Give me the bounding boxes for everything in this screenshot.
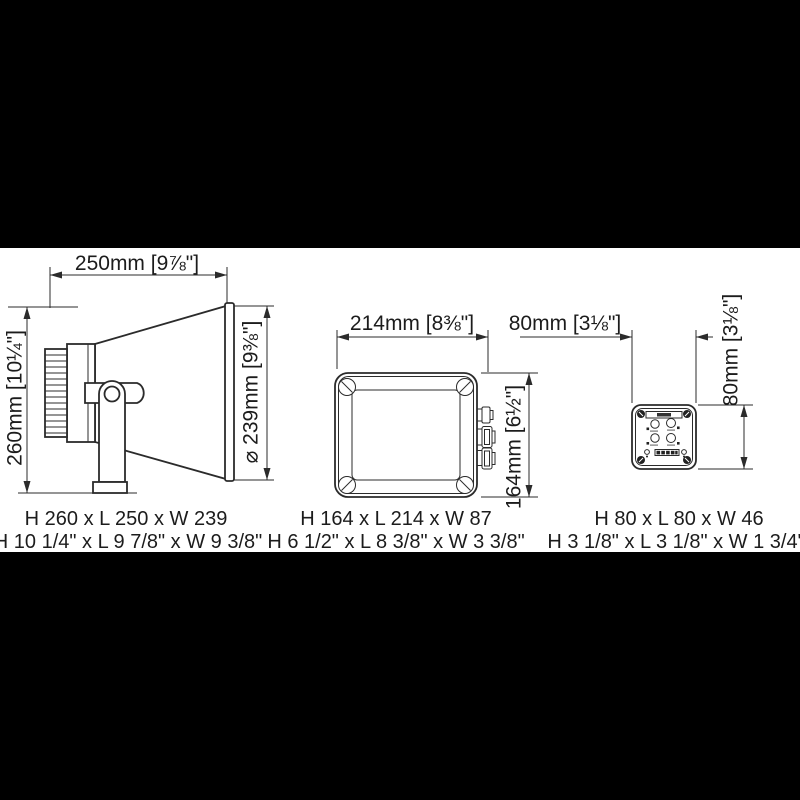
horn-caption-imperial: H 10 1/4" x L 9 7/8" x W 9 3/8" xyxy=(0,531,262,553)
control-panel-drawing xyxy=(632,405,696,469)
box-length-dim-label: 214mm [8⅜"] xyxy=(350,312,474,335)
panel-button-2[interactable] xyxy=(667,419,676,428)
bracket-foot xyxy=(93,482,127,493)
panel-caption-imperial: H 3 1/8" x L 3 1/8" x W 1 3/4" xyxy=(547,531,800,553)
box-height-dim-label: 164mm [6½"] xyxy=(502,385,525,509)
ribbed-back xyxy=(45,349,67,437)
amplifier-box-drawing xyxy=(335,373,495,497)
box-outer xyxy=(335,373,477,497)
horn-diameter-dim-label: ⌀ 239mm [9⅜"] xyxy=(239,321,262,464)
horn-caption-metric: H 260 x L 250 x W 239 xyxy=(25,508,228,530)
horn-length-dim-label: 250mm [9⅞"] xyxy=(75,252,199,275)
pivot-screw xyxy=(105,387,120,402)
panel-button-4[interactable] xyxy=(667,434,676,443)
box-caption-imperial: H 6 1/2" x L 8 3/8" x W 3 3/8" xyxy=(267,531,524,553)
panel-top-label-text xyxy=(657,413,671,417)
panel-length-dim-label: 80mm [3⅛"] xyxy=(509,312,622,335)
horn-mouth-rim xyxy=(225,303,234,481)
horn-height-dim-label: 260mm [10¼"] xyxy=(3,330,26,466)
captions: H 260 x L 250 x W 239 H 10 1/4" x L 9 7/… xyxy=(0,508,800,553)
box-caption-metric: H 164 x L 214 x W 87 xyxy=(300,508,492,530)
dimension-diagram: 250mm [9⅞"] 260mm [10¼"] ⌀ 239mm [9⅜"] xyxy=(0,0,800,800)
panel-caption-metric: H 80 x L 80 x W 46 xyxy=(594,508,763,530)
technical-drawing-page: 250mm [9⅞"] 260mm [10¼"] ⌀ 239mm [9⅜"] xyxy=(0,0,800,800)
panel-height-dim-label: 80mm [3⅛"] xyxy=(719,294,742,407)
panel-button-3[interactable] xyxy=(651,434,659,442)
panel-button-1[interactable] xyxy=(651,420,659,428)
